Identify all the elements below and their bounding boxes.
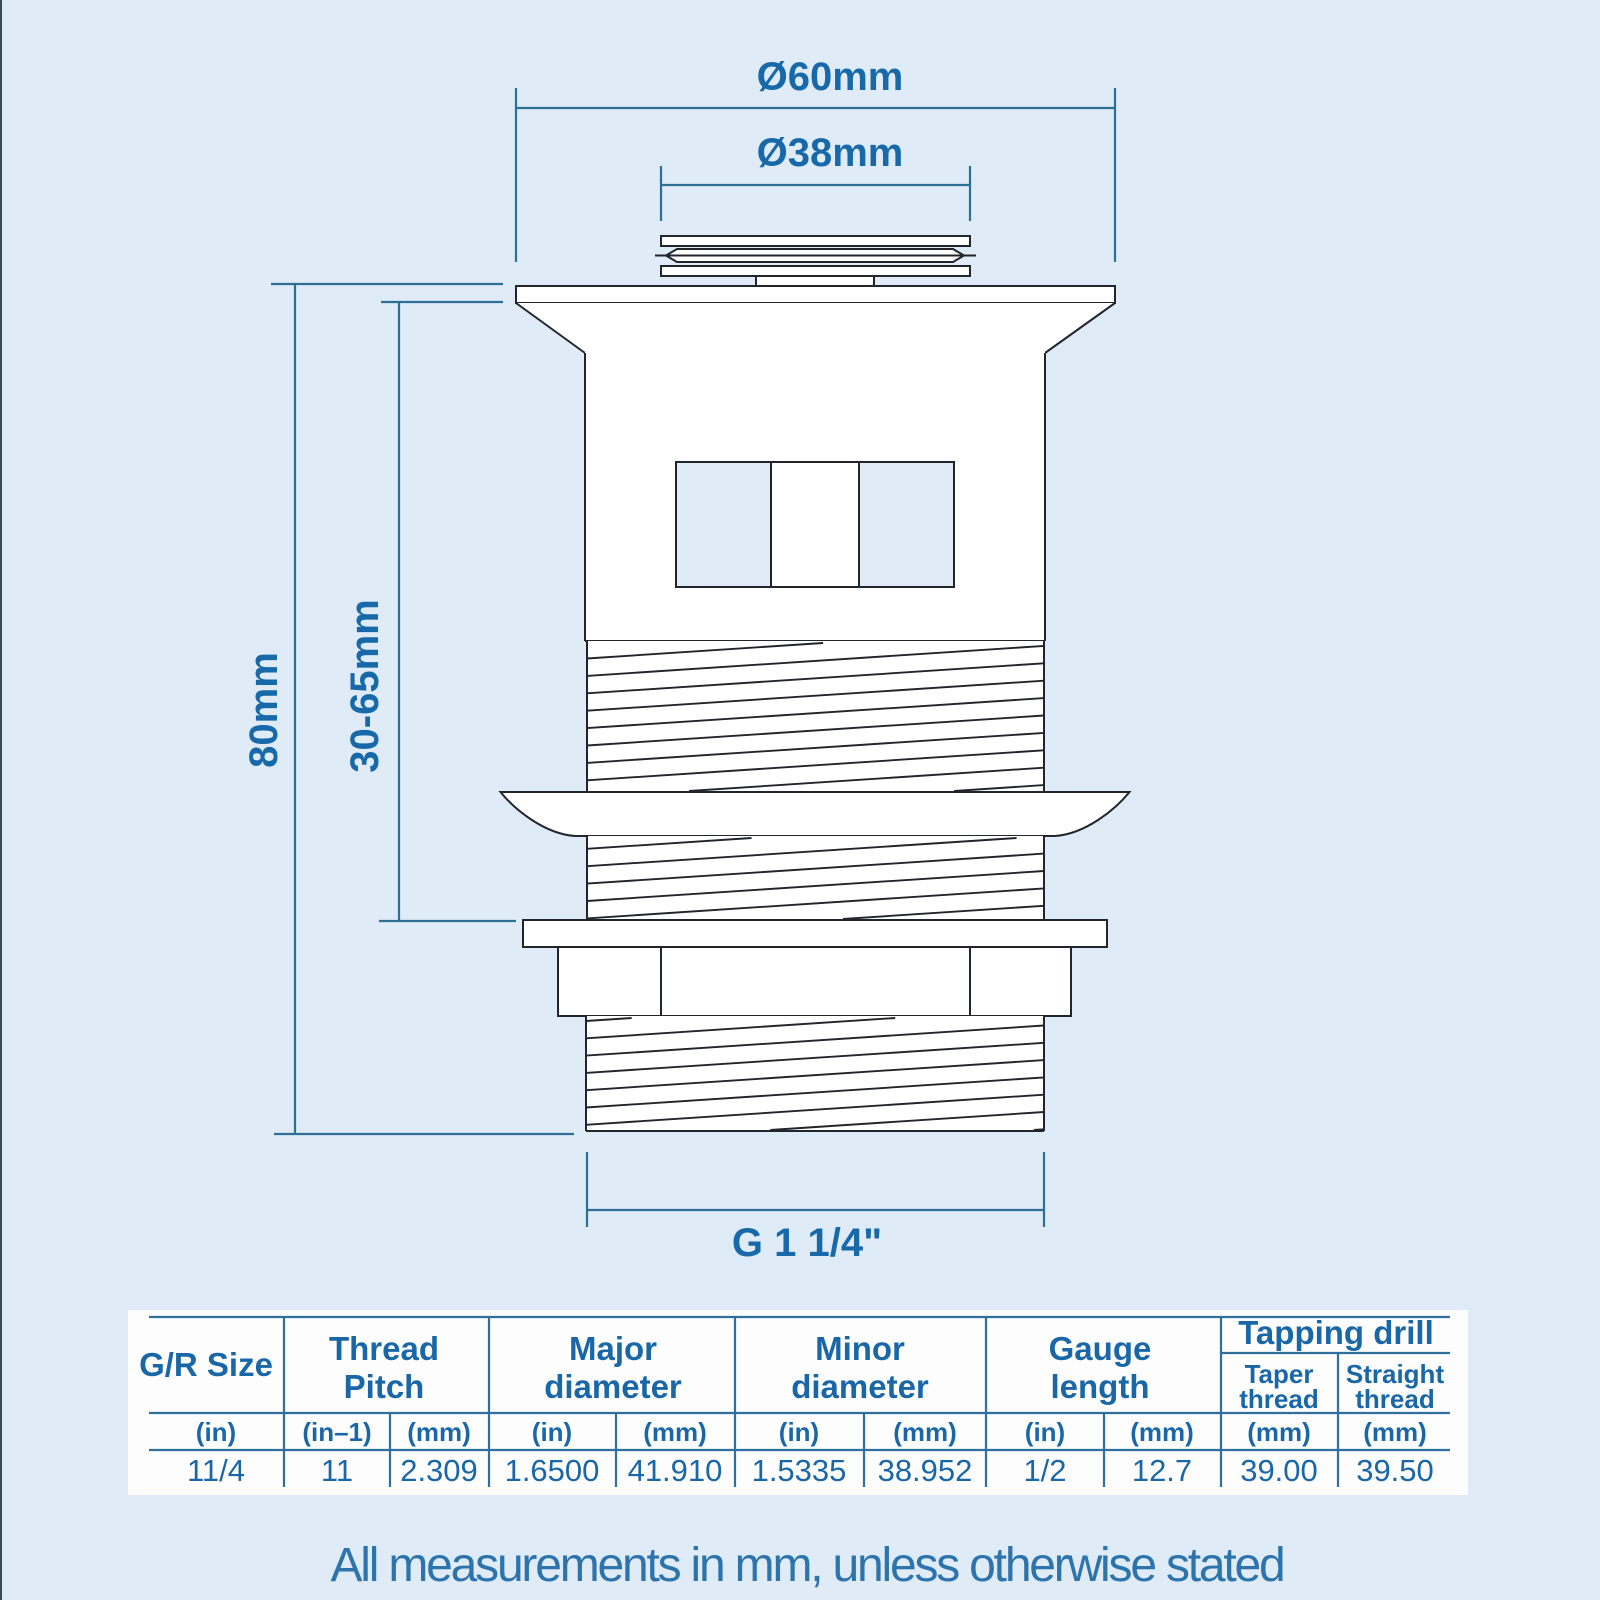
svg-text:Ø60mm: Ø60mm	[757, 55, 904, 99]
svg-text:G/R Size: G/R Size	[139, 1346, 273, 1383]
svg-text:39.50: 39.50	[1356, 1453, 1434, 1488]
svg-text:Minor: Minor	[815, 1330, 905, 1367]
svg-text:(in–1): (in–1)	[302, 1417, 371, 1447]
svg-text:41.910: 41.910	[628, 1453, 723, 1488]
svg-text:38.952: 38.952	[878, 1453, 973, 1488]
svg-text:thread: thread	[1239, 1384, 1318, 1414]
svg-text:Thread: Thread	[329, 1330, 439, 1367]
svg-text:length: length	[1051, 1368, 1150, 1405]
svg-text:30-65mm: 30-65mm	[343, 599, 387, 772]
svg-text:11: 11	[321, 1453, 353, 1488]
svg-text:39.00: 39.00	[1240, 1453, 1318, 1488]
svg-text:(mm): (mm)	[407, 1417, 471, 1447]
svg-text:11/4: 11/4	[187, 1453, 245, 1488]
svg-text:Major: Major	[569, 1330, 657, 1367]
svg-text:Gauge: Gauge	[1049, 1330, 1152, 1367]
svg-text:(mm): (mm)	[1363, 1417, 1427, 1447]
svg-text:1.6500: 1.6500	[505, 1453, 600, 1488]
svg-text:(mm): (mm)	[1130, 1417, 1194, 1447]
svg-text:12.7: 12.7	[1132, 1453, 1192, 1488]
svg-text:1.5335: 1.5335	[752, 1453, 847, 1488]
svg-text:G 1 1/4": G 1 1/4"	[732, 1221, 882, 1265]
svg-text:(mm): (mm)	[893, 1417, 957, 1447]
svg-text:(in): (in)	[779, 1417, 819, 1447]
svg-text:Ø38mm: Ø38mm	[757, 131, 904, 175]
svg-text:(in): (in)	[532, 1417, 572, 1447]
svg-text:All measurements in mm, unless: All measurements in mm, unless otherwise…	[330, 1539, 1283, 1592]
svg-text:(mm): (mm)	[1247, 1417, 1311, 1447]
svg-text:80mm: 80mm	[242, 652, 286, 768]
svg-text:Tapping drill: Tapping drill	[1238, 1314, 1434, 1351]
svg-text:Pitch: Pitch	[344, 1368, 425, 1405]
svg-text:diameter: diameter	[791, 1368, 929, 1405]
svg-text:(mm): (mm)	[643, 1417, 707, 1447]
svg-text:thread: thread	[1355, 1384, 1434, 1414]
svg-text:1/2: 1/2	[1023, 1453, 1066, 1488]
svg-text:diameter: diameter	[544, 1368, 682, 1405]
svg-text:(in): (in)	[1025, 1417, 1065, 1447]
svg-text:(in): (in)	[196, 1417, 236, 1447]
svg-text:2.309: 2.309	[400, 1453, 478, 1488]
